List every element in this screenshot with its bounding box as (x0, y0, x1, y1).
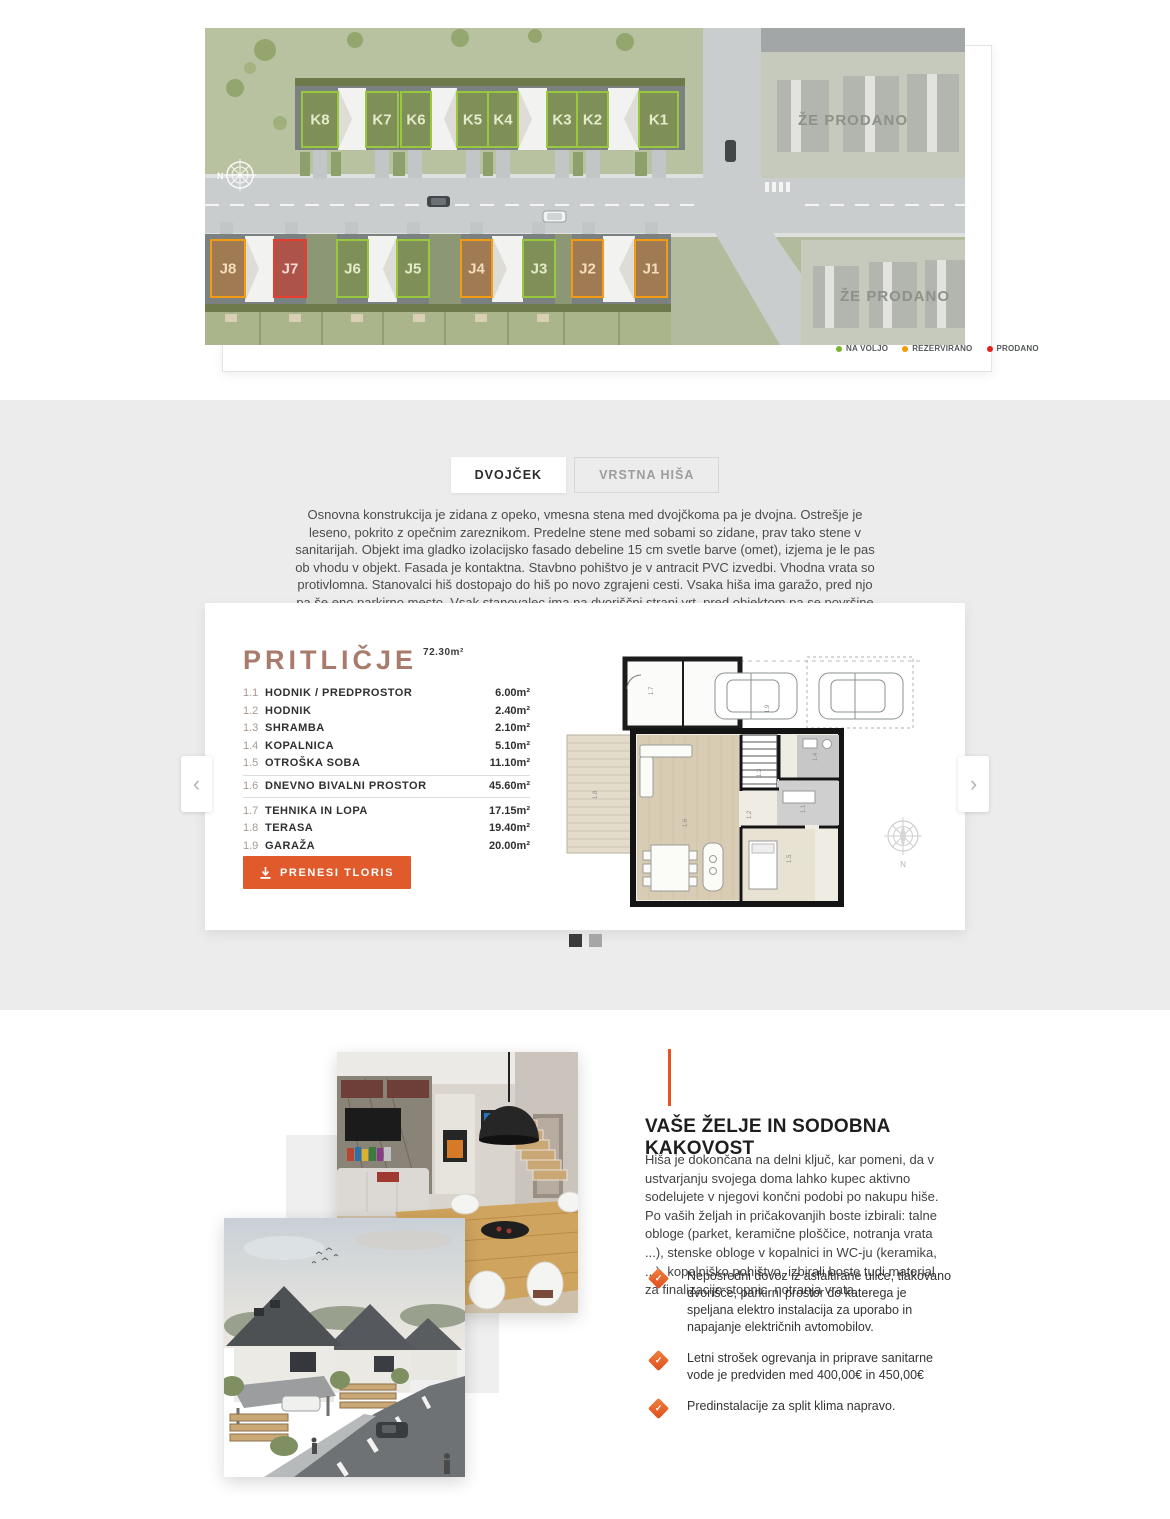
svg-text:1.3: 1.3 (757, 768, 763, 777)
house-j6[interactable]: J6 (337, 240, 368, 297)
legend-item-rezervirano: REZERVIRANO (902, 344, 972, 353)
house-k7[interactable]: K7 (366, 92, 398, 147)
room-area: 19.40m² (489, 822, 530, 834)
accent-line (668, 1049, 671, 1106)
check-icon: ✓ (655, 1404, 663, 1413)
legend-label: NA VOLJO (846, 344, 888, 353)
legend-dot-icon (836, 346, 842, 352)
house-k6[interactable]: K6 (401, 92, 431, 147)
floorplan-north-label: N (900, 860, 906, 869)
house-id-label: K8 (310, 112, 329, 129)
legend-dot-icon (902, 346, 908, 352)
svg-text:1.1: 1.1 (801, 804, 807, 813)
house-id-label: J4 (468, 261, 485, 278)
sold-area-top: ŽE PRODANO (761, 52, 965, 178)
floorplan-compass-icon: N (884, 817, 922, 869)
room-name: HODNIK / PREDPROSTOR (265, 687, 495, 699)
svg-text:1.7: 1.7 (649, 686, 655, 695)
legend-dot-icon (987, 346, 993, 352)
carousel-dot-2[interactable] (589, 934, 602, 947)
house-j1[interactable]: J1 (635, 240, 667, 297)
terrace (567, 735, 631, 853)
house-k2[interactable]: K2 (577, 92, 608, 147)
room-row-1.9: 1.9GARAŽA20.00m² (243, 840, 530, 852)
tab-dvojcek[interactable]: DVOJČEK (451, 457, 566, 493)
siteplan-svg: ŽE PRODANO ŽE PRODANO (205, 28, 965, 345)
house-j3[interactable]: J3 (523, 240, 555, 297)
house-k4[interactable]: K4 (488, 92, 518, 147)
feature-bullet: ✓Neposredni dovoz iz asfaltirane ulice, … (648, 1268, 953, 1336)
room-number: 1.5 (243, 757, 265, 769)
house-id-label: K5 (463, 112, 482, 129)
legend-item-prodano: PRODANO (987, 344, 1039, 353)
room-row-1.1: 1.1HODNIK / PREDPROSTOR6.00m² (243, 687, 530, 699)
svg-text:1.8: 1.8 (593, 790, 599, 799)
floorplan-title: PRITLIČJE72.30m² (243, 645, 464, 676)
house-id-label: J7 (282, 261, 299, 278)
house-j4[interactable]: J4 (461, 240, 492, 297)
room-area: 11.10m² (490, 757, 530, 769)
tab-vrstna-hisa[interactable]: VRSTNA HIŠA (574, 457, 719, 493)
room-area: 2.10m² (495, 722, 530, 734)
room-name: KOPALNICA (265, 740, 495, 752)
house-j5[interactable]: J5 (397, 240, 429, 297)
room-area: 20.00m² (489, 840, 530, 852)
room-name: SHRAMBA (265, 722, 495, 734)
room-name: GARAŽA (265, 840, 489, 852)
house-id-label: J2 (579, 261, 596, 278)
floor-name: PRITLIČJE (243, 645, 417, 675)
carousel-prev-button[interactable]: ‹ (181, 756, 212, 812)
room-number: 1.9 (243, 840, 265, 852)
bullet-text: Predinstalacije za split klima napravo. (687, 1398, 895, 1416)
house-k1[interactable]: K1 (639, 92, 678, 147)
car-outline-garage (715, 673, 797, 719)
carousel-dots (0, 934, 1170, 947)
feature-bullet: ✓Predinstalacije za split klima napravo. (648, 1398, 953, 1416)
siteplan-legend: NA VOLJOREZERVIRANOPRODANO (836, 344, 1039, 353)
room-number: 1.3 (243, 722, 265, 734)
check-diamond-icon: ✓ (648, 1398, 669, 1419)
house-id-label: J3 (531, 261, 548, 278)
page: ŽE PRODANO ŽE PRODANO (0, 0, 1170, 1519)
room-number: 1.7 (243, 805, 265, 817)
legend-label: REZERVIRANO (912, 344, 972, 353)
room-row-1.5: 1.5OTROŠKA SOBA11.10m² (243, 757, 530, 769)
download-label: PRENESI TLORIS (280, 867, 394, 879)
download-floorplan-button[interactable]: PRENESI TLORIS (243, 856, 411, 889)
svg-text:1.6: 1.6 (683, 818, 689, 827)
sold-area-label-top: ŽE PRODANO (798, 111, 908, 129)
carousel-dot-1[interactable] (569, 934, 582, 947)
siteplan-north-label: N (217, 171, 224, 181)
house-id-label: J6 (344, 261, 361, 278)
sold-area-label-bottom: ŽE PRODANO (840, 287, 950, 305)
svg-text:1.5: 1.5 (787, 854, 793, 863)
chevron-right-icon: › (970, 771, 977, 796)
check-diamond-icon: ✓ (648, 1350, 669, 1371)
bullet-text: Letni strošek ogrevanja in priprave sani… (687, 1350, 953, 1384)
room-number: 1.8 (243, 822, 265, 834)
floorplan-card: PRITLIČJE72.30m² 1.1HODNIK / PREDPROSTOR… (205, 603, 965, 930)
house-j2[interactable]: J2 (572, 240, 603, 297)
room-name: HODNIK (265, 705, 495, 717)
house-id-label: K6 (406, 112, 425, 129)
features-bullet-list: ✓Neposredni dovoz iz asfaltirane ulice, … (648, 1268, 953, 1430)
room-row-1.3: 1.3SHRAMBA2.10m² (243, 722, 530, 734)
room-area: 17.15m² (489, 805, 530, 817)
house-id-label: K7 (372, 112, 391, 129)
room-area: 2.40m² (495, 705, 530, 717)
room-name: OTROŠKA SOBA (265, 757, 490, 769)
room-row-1.2: 1.2HODNIK2.40m² (243, 705, 530, 717)
unit-type-tabs: DVOJČEKVRSTNA HIŠA (0, 457, 1170, 493)
legend-label: PRODANO (997, 344, 1039, 353)
check-icon: ✓ (655, 1356, 663, 1365)
exterior-photo (224, 1218, 465, 1477)
house-id-label: J5 (405, 261, 422, 278)
house-k5[interactable]: K5 (457, 92, 488, 147)
house-k8[interactable]: K8 (302, 92, 338, 147)
room-area: 5.10m² (495, 740, 530, 752)
siteplan-image: ŽE PRODANO ŽE PRODANO (205, 28, 965, 345)
floor-total-area: 72.30m² (423, 647, 464, 658)
legend-item-na-voljo: NA VOLJO (836, 344, 888, 353)
house-j8[interactable]: J8 (211, 240, 245, 297)
room-number: 1.6 (243, 780, 265, 792)
room-number: 1.1 (243, 687, 265, 699)
check-diamond-icon: ✓ (648, 1268, 669, 1289)
room-name: TEHNIKA IN LOPA (265, 805, 489, 817)
svg-text:1.4: 1.4 (813, 752, 819, 761)
floorplan-drawing: 1.7 1.9 1.8 1.6 1.5 1.4 1.3 1.2 1.1 N (555, 631, 935, 916)
room-number: 1.2 (243, 705, 265, 717)
house-j7[interactable]: J7 (274, 240, 306, 297)
house-k3[interactable]: K3 (547, 92, 577, 147)
check-icon: ✓ (655, 1274, 663, 1283)
room-row-1.6: 1.6DNEVNO BIVALNI PROSTOR45.60m² (243, 775, 530, 798)
room-row-1.7: 1.7TEHNIKA IN LOPA17.15m² (243, 805, 530, 817)
room-row-1.4: 1.4KOPALNICA5.10m² (243, 740, 530, 752)
room-name: TERASA (265, 822, 489, 834)
room-area: 6.00m² (495, 687, 530, 699)
svg-text:1.9: 1.9 (765, 704, 771, 713)
svg-text:1.2: 1.2 (747, 810, 753, 819)
unit-details-section: DVOJČEKVRSTNA HIŠA Osnovna konstrukcija … (0, 400, 1170, 1010)
sold-area-bottom: ŽE PRODANO (801, 240, 965, 345)
house-id-label: J1 (643, 261, 660, 278)
bullet-text: Neposredni dovoz iz asfaltirane ulice, t… (687, 1268, 953, 1336)
room-number: 1.4 (243, 740, 265, 752)
room-area: 45.60m² (489, 780, 530, 792)
room-name: DNEVNO BIVALNI PROSTOR (265, 780, 489, 792)
carousel-next-button[interactable]: › (958, 756, 989, 812)
house-id-label: J8 (220, 261, 237, 278)
house-id-label: K3 (552, 112, 571, 129)
download-icon (260, 867, 271, 879)
house-id-label: K2 (583, 112, 602, 129)
house-id-label: K1 (649, 112, 668, 129)
room-row-1.8: 1.8TERASA19.40m² (243, 822, 530, 834)
car-outline-parking (819, 673, 903, 719)
house-id-label: K4 (493, 112, 513, 129)
chevron-left-icon: ‹ (193, 771, 200, 796)
room-list: 1.1HODNIK / PREDPROSTOR6.00m²1.2HODNIK2.… (243, 687, 530, 857)
feature-bullet: ✓Letni strošek ogrevanja in priprave san… (648, 1350, 953, 1384)
